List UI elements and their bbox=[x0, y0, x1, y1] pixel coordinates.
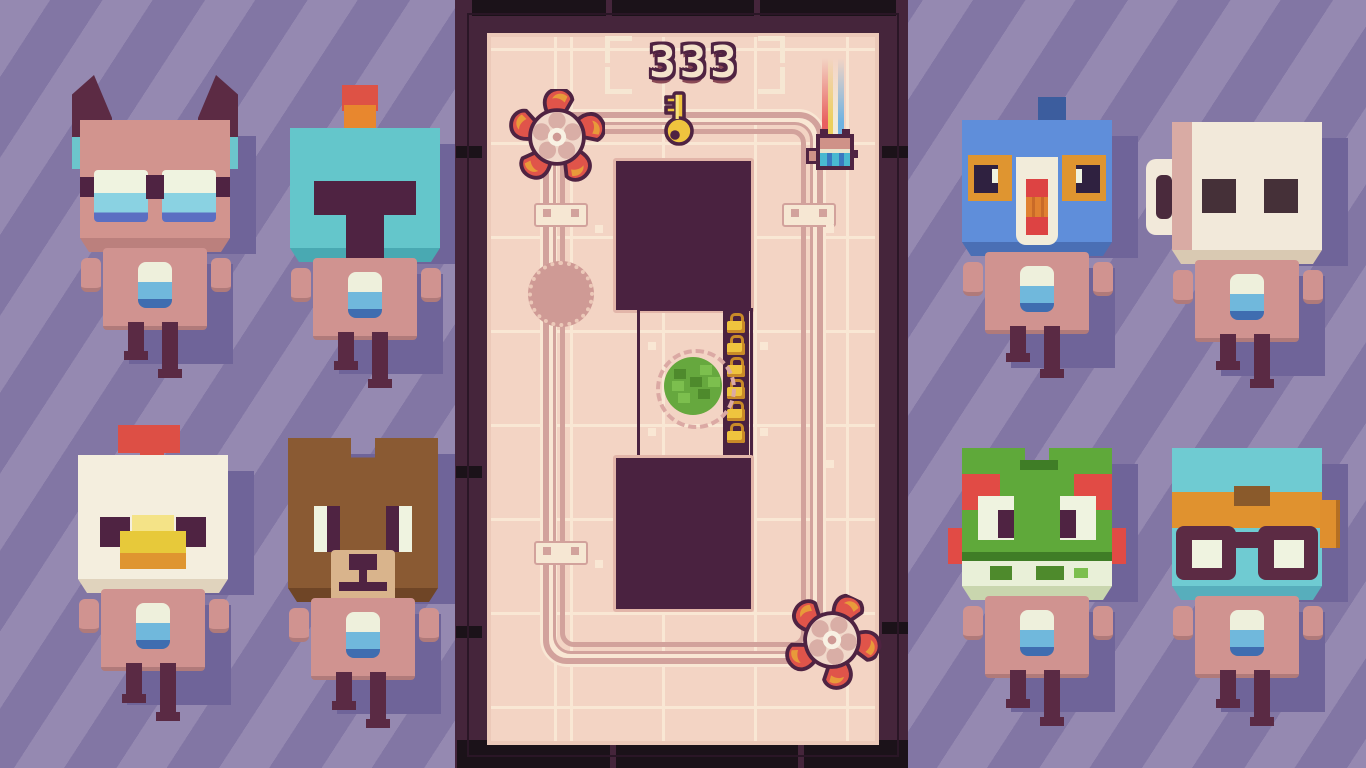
glasses-lens-left bbox=[94, 170, 148, 222]
glasses-lens-right bbox=[162, 170, 216, 222]
player-cat bbox=[816, 134, 854, 170]
visor-stem bbox=[346, 213, 384, 259]
beak-mid bbox=[120, 531, 186, 553]
rainbow-trail bbox=[822, 58, 844, 138]
character-chicken[interactable] bbox=[68, 425, 238, 755]
leg-left bbox=[1220, 334, 1236, 370]
leg-left bbox=[338, 332, 354, 370]
character-knight[interactable] bbox=[280, 85, 450, 415]
notch-shadow bbox=[1020, 460, 1058, 470]
lock-icon bbox=[727, 313, 745, 333]
arm-left bbox=[1173, 606, 1193, 640]
leg-right bbox=[160, 663, 176, 721]
arm-right bbox=[1093, 262, 1113, 296]
floor-rivet bbox=[595, 225, 603, 233]
eye-left bbox=[1202, 179, 1236, 213]
arm-right bbox=[209, 599, 229, 633]
glasses-hinge-left bbox=[80, 177, 94, 197]
beak-orange bbox=[1026, 197, 1048, 217]
badge-icon bbox=[136, 603, 170, 649]
eye-left-white bbox=[314, 506, 327, 552]
eye-right-pupil bbox=[1060, 510, 1076, 538]
goggle-lens-left bbox=[1192, 540, 1222, 568]
badge-icon bbox=[346, 612, 380, 658]
leg-right bbox=[1254, 670, 1270, 726]
score-counter: 333 bbox=[605, 34, 785, 92]
leg-left bbox=[1010, 670, 1026, 708]
bush bbox=[664, 357, 722, 415]
saw-blade-icon bbox=[509, 89, 605, 185]
badge-icon bbox=[348, 272, 382, 318]
arm-right bbox=[1303, 270, 1323, 304]
goggle-lens-right bbox=[1274, 540, 1304, 568]
character-mug[interactable] bbox=[1162, 95, 1332, 425]
character-bat[interactable] bbox=[70, 75, 240, 405]
leg-right bbox=[1044, 670, 1060, 726]
strap bbox=[1320, 500, 1340, 548]
mug-side bbox=[1172, 122, 1192, 250]
badge-icon bbox=[1230, 274, 1264, 320]
badge-icon bbox=[1020, 266, 1054, 312]
eye-right-glint bbox=[1076, 169, 1082, 183]
pit-bottom bbox=[613, 455, 754, 612]
glasses-bridge bbox=[146, 175, 164, 199]
arm-left bbox=[81, 258, 101, 292]
visor-bar bbox=[314, 181, 416, 215]
chin-spot bbox=[990, 566, 1012, 580]
leg-left bbox=[336, 672, 352, 710]
key-icon bbox=[659, 90, 697, 148]
track-station bbox=[534, 203, 588, 227]
game-screen[interactable]: 333 bbox=[0, 0, 1366, 768]
floor-rivet bbox=[826, 460, 834, 468]
pit-top bbox=[613, 158, 754, 313]
leg-right bbox=[1044, 326, 1060, 378]
leg-right bbox=[370, 672, 386, 728]
buckle bbox=[1234, 486, 1270, 506]
character-frog[interactable] bbox=[952, 436, 1122, 766]
mouth-line bbox=[962, 552, 1112, 561]
character-pigeon[interactable] bbox=[952, 95, 1122, 425]
arm-left bbox=[1173, 270, 1193, 304]
arm-right bbox=[419, 608, 439, 642]
eye-left-glint bbox=[992, 169, 998, 183]
arm-left bbox=[963, 606, 983, 640]
leg-left bbox=[128, 322, 144, 360]
eye-left-pupil bbox=[998, 510, 1014, 538]
eye-right-white bbox=[399, 506, 412, 552]
leg-right bbox=[1254, 334, 1270, 388]
badge-icon bbox=[1230, 610, 1264, 656]
track-circle bbox=[528, 261, 594, 327]
character-goggles[interactable] bbox=[1162, 436, 1332, 766]
track-station bbox=[534, 541, 588, 565]
beak-top bbox=[132, 515, 174, 531]
track-station bbox=[782, 203, 836, 227]
chin-spot bbox=[1074, 568, 1088, 578]
eye-right-pupil bbox=[386, 506, 399, 552]
leg-right bbox=[162, 322, 178, 378]
arm-left bbox=[79, 599, 99, 633]
arm-right bbox=[1303, 606, 1323, 640]
floor-rivet bbox=[595, 560, 603, 568]
beak-red-top bbox=[1026, 179, 1048, 197]
floor-rivet bbox=[760, 342, 768, 350]
arm-left bbox=[291, 268, 311, 302]
leg-left bbox=[126, 663, 142, 703]
arm-right bbox=[211, 258, 231, 292]
leg-right bbox=[372, 332, 388, 388]
arm-left bbox=[963, 262, 983, 296]
leg-left bbox=[1220, 670, 1236, 708]
chin-spot bbox=[1036, 566, 1064, 580]
nose bbox=[349, 554, 377, 570]
eye-right bbox=[1264, 179, 1298, 213]
mouth bbox=[339, 582, 387, 591]
arm-right bbox=[421, 268, 441, 302]
beak-red-bottom bbox=[1026, 217, 1048, 235]
badge-icon bbox=[138, 262, 172, 308]
lock-icon bbox=[727, 335, 745, 355]
badge-icon bbox=[1020, 610, 1054, 656]
lock-icon bbox=[727, 423, 745, 443]
eye-left-pupil bbox=[327, 506, 340, 552]
glasses-hinge-right bbox=[216, 177, 230, 197]
floor-rivet bbox=[760, 428, 768, 436]
mug-head bbox=[1172, 122, 1322, 250]
arm-right bbox=[1093, 606, 1113, 640]
character-bear[interactable] bbox=[278, 430, 448, 760]
mug-handle-hole bbox=[1156, 175, 1172, 219]
floor-rivet bbox=[826, 225, 834, 233]
leg-left bbox=[1010, 326, 1026, 362]
goggle-bridge bbox=[1224, 532, 1270, 548]
beak-bottom bbox=[120, 553, 186, 569]
arm-left bbox=[289, 608, 309, 642]
